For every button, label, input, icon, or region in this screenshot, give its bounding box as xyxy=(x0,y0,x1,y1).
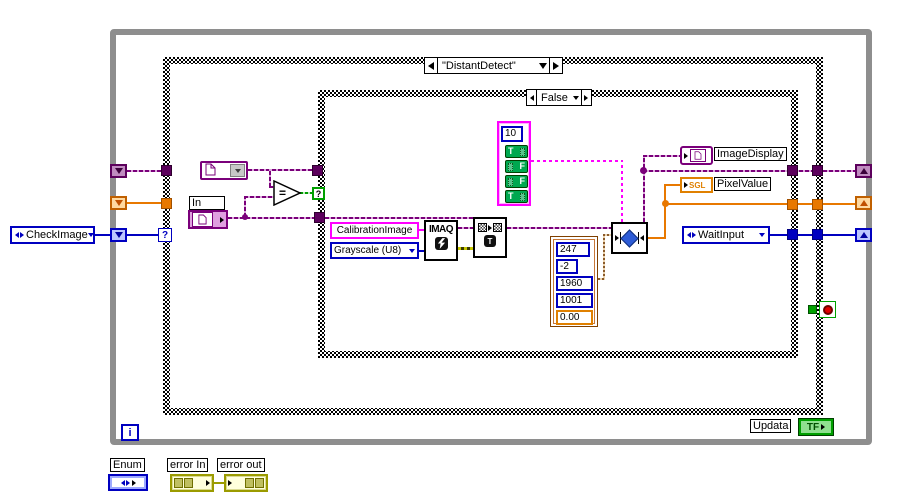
error-wire xyxy=(458,247,473,250)
tunnel-image-right-inner[interactable] xyxy=(787,165,798,176)
updata-boolean-terminal[interactable]: TF xyxy=(798,418,834,436)
boolean-array-constant[interactable]: 10 T F F T xyxy=(497,121,531,206)
enum-arrows-icon xyxy=(121,480,130,486)
control-arrow-icon xyxy=(132,480,136,486)
image-wire xyxy=(244,196,275,198)
dropdown-icon[interactable] xyxy=(759,233,765,237)
imaq-node-title: IMAQ xyxy=(429,224,453,235)
stop-icon xyxy=(823,305,833,315)
calibration-string-constant[interactable]: CalibrationImage xyxy=(330,222,419,239)
image-wire xyxy=(127,170,161,172)
image-wire xyxy=(507,227,611,229)
numeric-wire xyxy=(664,184,666,239)
error-in-terminal[interactable] xyxy=(170,474,214,492)
pixelvalue-indicator-icon[interactable]: SGL xyxy=(680,177,713,193)
bool-slider xyxy=(508,163,513,171)
tunnel-image-left[interactable] xyxy=(161,165,172,176)
boolean-array-wire xyxy=(531,160,623,162)
bool-element[interactable]: F xyxy=(505,175,528,188)
enum-label: Enum xyxy=(110,458,145,472)
image-wire xyxy=(269,169,271,187)
imaq-cast-node[interactable]: T xyxy=(473,217,507,258)
image-to-image-icon xyxy=(475,223,505,232)
indicator-arrow-icon xyxy=(684,153,688,159)
image-wire xyxy=(248,169,312,171)
image-wire xyxy=(458,227,473,229)
loop-condition-terminal[interactable] xyxy=(819,301,836,318)
control-arrow-icon xyxy=(821,424,825,430)
case-dropdown-icon[interactable] xyxy=(572,90,581,105)
output-arrow-icon xyxy=(220,214,224,226)
tunnel-image-right-outer[interactable] xyxy=(812,165,823,176)
indicator-arrow-icon xyxy=(228,480,232,486)
tunnel-numeric-right-inner[interactable] xyxy=(787,199,798,210)
shift-register-left-enum[interactable] xyxy=(110,228,127,242)
numeric-wire xyxy=(664,184,680,186)
equal-glyph: = xyxy=(279,186,286,200)
arrow-in-right-icon xyxy=(640,235,644,241)
image-wire xyxy=(643,155,645,222)
case-prev-icon[interactable] xyxy=(425,58,438,73)
bool-element[interactable]: F xyxy=(505,160,528,173)
inner-case-name: False xyxy=(537,90,572,105)
numeric-wire xyxy=(127,202,161,204)
cluster-value-float[interactable]: 0.00 xyxy=(556,310,593,325)
tunnel-enum-right-outer[interactable] xyxy=(812,229,823,240)
checkimage-label: CheckImage xyxy=(26,229,88,241)
bool-element[interactable]: T xyxy=(505,190,528,203)
cluster-value[interactable]: 1001 xyxy=(556,293,593,308)
sgl-type-label: SGL xyxy=(689,181,705,190)
cluster-constant[interactable]: 247 -2 1960 1001 0.00 xyxy=(550,236,598,327)
imaq-create-node[interactable]: IMAQ xyxy=(424,220,458,261)
image-ref-control[interactable] xyxy=(200,161,248,180)
iteration-terminal[interactable]: i xyxy=(121,424,139,441)
cluster-wire xyxy=(598,278,605,280)
bool-slider xyxy=(520,193,525,201)
waitinput-label: WaitInput xyxy=(698,229,759,241)
bool-slider xyxy=(508,178,513,186)
tunnel-enum-right-inner[interactable] xyxy=(787,229,798,240)
image-wire xyxy=(643,170,855,172)
cluster-value[interactable]: 1960 xyxy=(556,276,593,291)
case-next-icon[interactable] xyxy=(581,90,591,105)
cluster-value[interactable]: 247 xyxy=(556,242,590,257)
outer-case-selector-label[interactable]: "DistantDetect" xyxy=(424,57,563,74)
wire-junction xyxy=(242,214,248,220)
in-constant-label: In xyxy=(189,196,225,210)
grayscale-enum-constant[interactable]: Grayscale (U8) xyxy=(330,242,419,259)
boolean-array-wire xyxy=(621,160,623,222)
error-cluster-icon xyxy=(245,478,264,488)
diamond-icon xyxy=(620,229,638,247)
error-cluster-icon xyxy=(174,478,193,488)
image-wire xyxy=(643,155,680,157)
tunnel-numeric-left[interactable] xyxy=(161,198,172,209)
enum-wire xyxy=(127,234,158,236)
case-dropdown-icon[interactable] xyxy=(537,58,549,73)
case-selector-tunnel-outer[interactable]: ? xyxy=(158,228,172,242)
wire-junction xyxy=(662,200,669,207)
indicator-arrow-icon xyxy=(684,182,688,188)
inner-case-selector-label[interactable]: False xyxy=(526,89,592,106)
shift-register-left-numeric[interactable] xyxy=(110,196,127,210)
tunnel-numeric-right-outer[interactable] xyxy=(812,199,823,210)
type-glyph: T xyxy=(484,235,496,247)
case-selector-tunnel-inner[interactable]: ? xyxy=(312,187,325,200)
shift-register-right-image[interactable] xyxy=(855,164,872,178)
outer-case-name: "DistantDetect" xyxy=(438,58,537,73)
enum-terminal[interactable] xyxy=(108,474,148,491)
enum-arrows-icon xyxy=(687,232,696,238)
shift-register-right-enum[interactable] xyxy=(855,228,872,242)
shift-register-left-image[interactable] xyxy=(110,164,127,178)
numeric-wire xyxy=(664,203,855,205)
cluster-value[interactable]: -2 xyxy=(556,259,578,274)
checkimage-enum-constant[interactable]: CheckImage xyxy=(10,226,95,244)
tunnel-image-left-inner2[interactable] xyxy=(314,212,325,223)
bool-element[interactable]: T xyxy=(505,145,528,158)
tunnel-image-left-inner[interactable] xyxy=(312,165,323,176)
arrow-in-left-icon xyxy=(615,235,619,241)
image-wire xyxy=(228,217,314,219)
error-out-terminal[interactable] xyxy=(224,474,268,492)
updata-label: Updata xyxy=(750,419,791,433)
error-in-label: error In xyxy=(167,458,208,472)
case-next-icon[interactable] xyxy=(549,58,562,73)
imagedisplay-label: ImageDisplay xyxy=(714,147,787,161)
image-page-icon xyxy=(690,149,706,162)
pixelvalue-label: PixelValue xyxy=(714,177,771,191)
imagedisplay-indicator-icon[interactable] xyxy=(680,146,713,165)
tunnel-boolean[interactable] xyxy=(808,305,817,314)
bool-slider xyxy=(520,148,525,156)
enum-arrows-icon xyxy=(15,232,24,238)
image-wire xyxy=(325,217,473,219)
cluster-wire xyxy=(603,234,605,280)
image-page-icon xyxy=(205,163,216,179)
in-image-constant[interactable] xyxy=(188,210,228,229)
dropdown-icon[interactable] xyxy=(88,233,94,237)
control-arrow-icon xyxy=(206,480,210,486)
enum-wire xyxy=(95,234,110,236)
array-index-box[interactable]: 10 xyxy=(501,126,523,142)
lightning-icon xyxy=(435,237,448,250)
imaq-light-meter-node[interactable] xyxy=(611,222,648,254)
wire-junction xyxy=(640,167,647,174)
dropdown-icon[interactable] xyxy=(409,249,415,253)
labview-block-diagram: "DistantDetect" False ? CheckImage In xyxy=(0,0,897,500)
error-out-label: error out xyxy=(217,458,265,472)
waitinput-enum-constant[interactable]: WaitInput xyxy=(682,226,770,244)
equal-node[interactable]: = xyxy=(273,180,303,206)
shift-register-right-numeric[interactable] xyxy=(855,196,872,210)
case-prev-icon[interactable] xyxy=(527,90,537,105)
dropdown-button[interactable] xyxy=(230,164,245,177)
image-page-icon xyxy=(192,212,213,227)
error-wire xyxy=(214,482,224,484)
